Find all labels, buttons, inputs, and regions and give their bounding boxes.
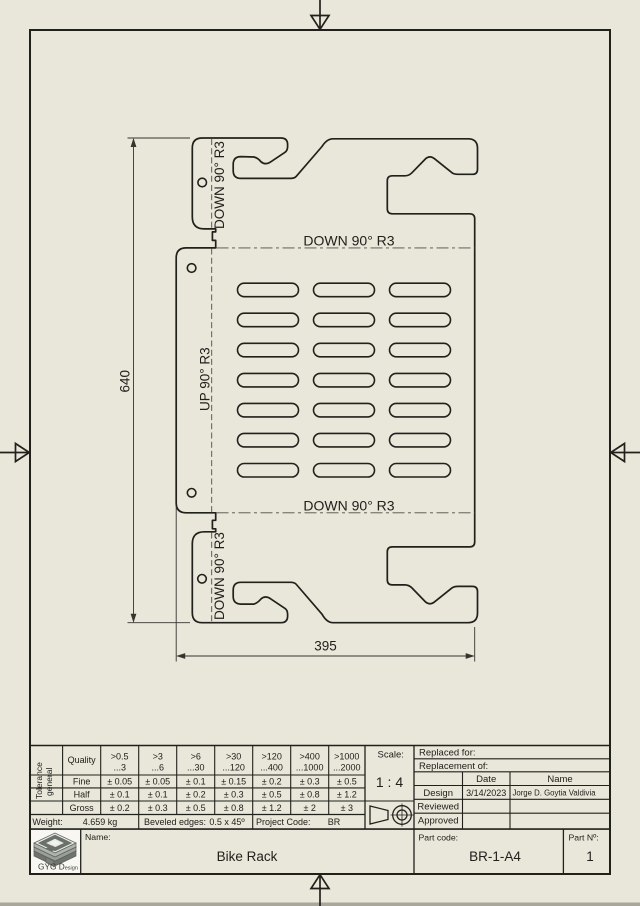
svg-text:...3: ...3 (113, 763, 126, 773)
svg-text:Scale:: Scale: (378, 750, 404, 761)
svg-text:± 0.1: ± 0.1 (148, 790, 168, 800)
svg-text:...400: ...400 (260, 763, 283, 773)
svg-text:± 0.15: ± 0.15 (221, 777, 246, 787)
svg-text:± 0.3: ± 0.3 (300, 777, 320, 787)
svg-text:± 0.5: ± 0.5 (186, 803, 206, 813)
svg-text:Design: Design (423, 788, 453, 799)
svg-text:± 0.05: ± 0.05 (107, 777, 132, 787)
svg-text:general: general (44, 768, 54, 796)
svg-text:± 0.5: ± 0.5 (337, 777, 357, 787)
svg-text:Gross: Gross (70, 803, 95, 813)
svg-text:Beveled edges:: Beveled edges: (144, 817, 206, 827)
svg-text:DOWN 90° R3: DOWN 90° R3 (303, 497, 394, 513)
svg-text:Name:: Name: (85, 832, 111, 842)
svg-text:...2000: ...2000 (333, 763, 361, 773)
svg-text:4.659 kg: 4.659 kg (83, 817, 118, 827)
svg-text:± 1.2: ± 1.2 (337, 790, 357, 800)
svg-text:Part code:: Part code: (419, 833, 459, 843)
svg-text:>1000: >1000 (334, 752, 359, 762)
svg-text:± 0.8: ± 0.8 (224, 803, 244, 813)
svg-text:Tolerance: Tolerance (34, 762, 44, 799)
svg-text:Reviewed: Reviewed (417, 802, 459, 813)
svg-text:3/14/2023: 3/14/2023 (466, 788, 506, 798)
svg-text:Project Code:: Project Code: (256, 817, 311, 827)
svg-text:± 0.1: ± 0.1 (186, 777, 206, 787)
svg-text:Name: Name (547, 774, 572, 785)
svg-text:...30: ...30 (187, 763, 205, 773)
svg-text:Date: Date (476, 774, 496, 785)
svg-text:>30: >30 (226, 752, 241, 762)
svg-text:± 0.3: ± 0.3 (148, 803, 168, 813)
svg-text:± 3: ± 3 (341, 803, 353, 813)
svg-text:Weight:: Weight: (32, 817, 62, 827)
svg-text:BR: BR (328, 817, 341, 827)
svg-text:± 0.1: ± 0.1 (110, 790, 130, 800)
svg-text:>120: >120 (262, 752, 282, 762)
svg-text:Bike Rack: Bike Rack (217, 849, 278, 864)
svg-text:± 0.3: ± 0.3 (224, 790, 244, 800)
svg-text:± 0.8: ± 0.8 (300, 790, 320, 800)
svg-text:640: 640 (118, 370, 133, 393)
svg-text:395: 395 (314, 639, 337, 654)
svg-text:>6: >6 (191, 752, 201, 762)
svg-text:± 0.5: ± 0.5 (262, 790, 282, 800)
svg-text:...6: ...6 (151, 763, 164, 773)
svg-text:± 0.2: ± 0.2 (262, 777, 282, 787)
svg-text:± 1.2: ± 1.2 (262, 803, 282, 813)
svg-text:Part Nº:: Part Nº: (569, 833, 599, 843)
svg-text:± 0.2: ± 0.2 (186, 790, 206, 800)
svg-text:± 2: ± 2 (303, 803, 315, 813)
svg-text:...120: ...120 (222, 763, 245, 773)
svg-text:Replacement of:: Replacement of: (419, 761, 488, 772)
svg-text:DOWN 90° R3: DOWN 90° R3 (212, 532, 227, 620)
svg-text:± 0.2: ± 0.2 (110, 803, 130, 813)
svg-text:Jorge D. Goytia Valdivia: Jorge D. Goytia Valdivia (512, 789, 596, 798)
svg-text:Approved: Approved (418, 815, 459, 826)
svg-text:>400: >400 (300, 752, 320, 762)
svg-text:Half: Half (74, 790, 91, 800)
svg-text:DOWN 90° R3: DOWN 90° R3 (303, 233, 394, 249)
svg-text:...1000: ...1000 (296, 763, 324, 773)
svg-text:BR-1-A4: BR-1-A4 (469, 849, 521, 864)
svg-text:1: 1 (586, 849, 594, 864)
svg-text:± 0.05: ± 0.05 (145, 777, 170, 787)
svg-text:1 : 4: 1 : 4 (376, 774, 403, 790)
svg-text:>0.5: >0.5 (111, 752, 129, 762)
svg-text:UP 90° R3: UP 90° R3 (198, 347, 213, 411)
svg-text:Replaced for:: Replaced for: (419, 748, 476, 759)
svg-text:Quality: Quality (68, 755, 97, 765)
svg-text:0.5 x 45º: 0.5 x 45º (209, 817, 245, 827)
svg-text:DOWN 90° R3: DOWN 90° R3 (212, 141, 227, 229)
svg-text:>3: >3 (153, 752, 163, 762)
svg-text:Fine: Fine (73, 777, 91, 787)
